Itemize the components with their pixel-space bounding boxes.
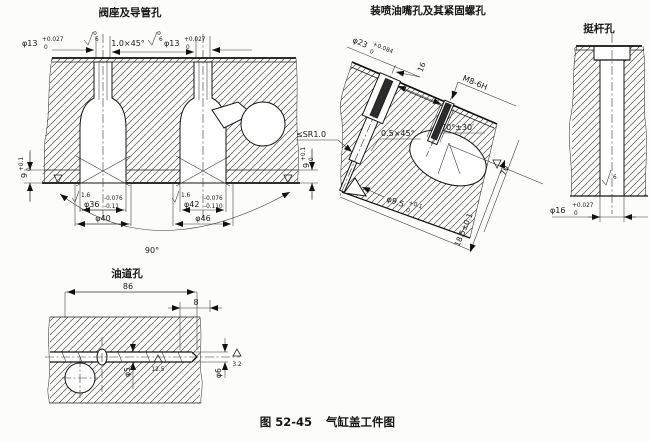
bore-sup: +0.027 bbox=[572, 203, 594, 209]
height-right-label: 9 +0.1 0 bbox=[301, 147, 315, 168]
roughness-value: 1.6 bbox=[81, 193, 91, 199]
roughness-value: 1.6 bbox=[181, 193, 191, 199]
height-right-sub: 0 bbox=[309, 157, 315, 161]
height-right-sup: +0.1 bbox=[301, 147, 307, 161]
dia23-sub: 0 bbox=[368, 49, 374, 56]
seat-right-outer-label: φ46 bbox=[195, 214, 210, 223]
engineering-drawing-page: 阀座及导管孔 φ13 +0.027 0 1.0×45° φ13 +0.027 0 bbox=[0, 0, 650, 442]
seat-right-sub: -0.110 bbox=[204, 204, 223, 210]
len8-label: 8 bbox=[193, 298, 198, 307]
chamfer05-label: 0.5×45° bbox=[381, 129, 415, 138]
injector-view-title: 装喷油嘴孔及其紧固螺孔 bbox=[369, 4, 486, 17]
dia13-left-sup: +0.027 bbox=[42, 37, 64, 43]
dia6-label: φ6 bbox=[214, 368, 223, 378]
seat-right-main: φ42 bbox=[184, 200, 199, 209]
height-left-sub: 0 bbox=[27, 167, 33, 171]
tappet-view-title: 挺杆孔 bbox=[583, 22, 615, 35]
roughness-value: 3.2 bbox=[232, 362, 242, 368]
roughness-mark-32: 3.2 bbox=[232, 349, 242, 368]
seat-angle-label: 90° bbox=[145, 246, 159, 255]
height-left-main: 9 bbox=[20, 173, 29, 178]
dia13-right-sup: +0.027 bbox=[184, 37, 206, 43]
roughness-value: 12.5 bbox=[152, 367, 165, 373]
angle70-label: 70°±30′ bbox=[441, 123, 474, 132]
height-left-label: 9 +0.1 0 bbox=[19, 157, 33, 178]
seat-left-sub: -0.11 bbox=[104, 204, 119, 210]
seat-note-label: ≤SR1.0 bbox=[296, 130, 326, 139]
dia23-arrow bbox=[396, 72, 420, 77]
roughness-value: 6 bbox=[95, 37, 99, 43]
caption-number: 图 52-45 bbox=[260, 415, 312, 429]
dia23-main: φ23 bbox=[351, 36, 369, 50]
seat-left-sup: -0.076 bbox=[104, 196, 123, 202]
dia13-right-sub: 0 bbox=[186, 45, 190, 51]
figure-caption: 图 52-45 气缸盖工件图 bbox=[260, 415, 395, 429]
dia13-left-sub: 0 bbox=[44, 45, 48, 51]
right-break-edge bbox=[200, 317, 202, 403]
dia23-label: φ23 +0.084 0 bbox=[350, 34, 394, 63]
dia5-text: φ5 bbox=[123, 367, 132, 377]
roughness-value: 6 bbox=[613, 175, 617, 181]
bore-dim-lines bbox=[552, 196, 648, 222]
round-port bbox=[241, 102, 285, 146]
valve-seat-view: 阀座及导管孔 φ13 +0.027 0 1.0×45° φ13 +0.027 0 bbox=[19, 6, 318, 255]
chamfer-label: 1.0×45° bbox=[111, 39, 145, 48]
roughness-mark-top-right: 6 bbox=[148, 32, 163, 45]
dia23-sup: +0.084 bbox=[372, 42, 394, 56]
seat-left-outer-label: φ40 bbox=[95, 214, 110, 223]
caption-title: 气缸盖工件图 bbox=[325, 415, 395, 429]
dim16-label: 16 bbox=[416, 61, 428, 74]
height-left-sup: +0.1 bbox=[19, 157, 25, 171]
roughness-value: 6 bbox=[159, 37, 163, 43]
dia13-left-main: φ13 bbox=[22, 39, 37, 48]
dia6-text: φ6 bbox=[214, 368, 223, 378]
seat-angle-arc bbox=[60, 192, 290, 231]
len86-label: 86 bbox=[123, 282, 133, 291]
tappet-view: 挺杆孔 6 φ16 +0.027 0 bbox=[550, 22, 648, 222]
dia5-label: φ5 bbox=[123, 367, 132, 377]
oil-view-title: 油道孔 bbox=[111, 267, 143, 280]
engineering-drawing-canvas: 阀座及导管孔 φ13 +0.027 0 1.0×45° φ13 +0.027 0 bbox=[0, 0, 650, 442]
seat-left-main: φ36 bbox=[84, 200, 99, 209]
bore-sub: 0 bbox=[574, 211, 578, 217]
bore-main: φ16 bbox=[550, 206, 565, 215]
seat-right-sup: -0.076 bbox=[204, 196, 223, 202]
dia13-right-main: φ13 bbox=[164, 39, 179, 48]
height-right-main: 9 bbox=[302, 163, 311, 168]
injector-view: 装喷油嘴孔及其紧固螺孔 bbox=[296, 4, 543, 252]
valve-view-title: 阀座及导管孔 bbox=[99, 6, 162, 19]
left-break-edge bbox=[48, 317, 50, 403]
oil-passage-view: 油道孔 86 8 φ5 12.5 φ6 bbox=[45, 267, 242, 403]
dim16-text: 16 bbox=[416, 61, 428, 74]
roughness-mark-top-left: 6 bbox=[84, 32, 99, 45]
